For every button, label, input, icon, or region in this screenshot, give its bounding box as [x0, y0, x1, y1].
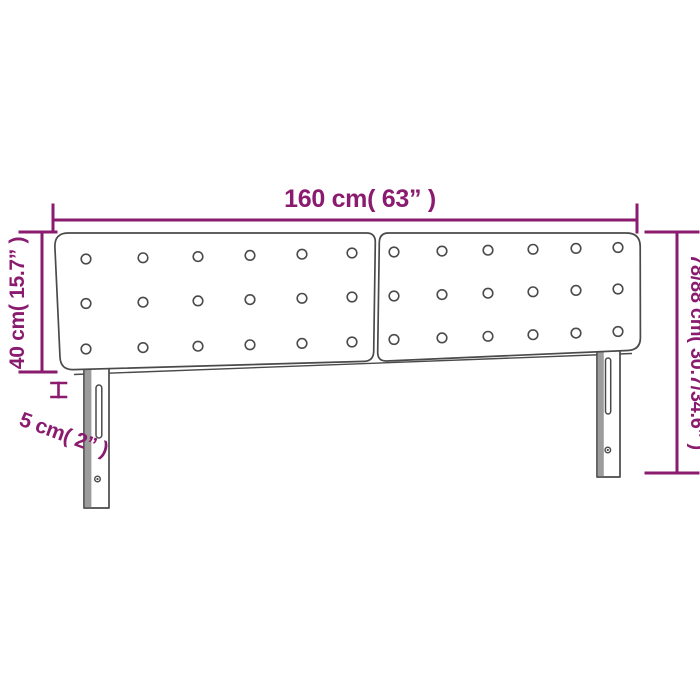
right-leg-slot [606, 358, 611, 414]
tufting-button [193, 341, 203, 351]
right-leg [597, 346, 620, 477]
diagram-canvas: 160 cm( 63” ) 40 cm( 15.7” ) 5 cm( 2” ) [0, 0, 700, 700]
headboard-right-panel [378, 233, 641, 361]
height-label: 40 cm( 15.7” ) [6, 237, 29, 369]
tufting-button [571, 244, 581, 254]
headboard-drawing [55, 233, 641, 508]
tufting-button [297, 339, 307, 349]
tufting-button [245, 340, 255, 350]
tufting-button [81, 254, 91, 264]
total-height-label: 78/88 cm( 30.7/34.6” ) [686, 254, 700, 450]
tufting-button [138, 343, 148, 353]
headboard-dimension-diagram: 160 cm( 63” ) 40 cm( 15.7” ) 5 cm( 2” ) [0, 0, 700, 700]
tufting-button [571, 328, 581, 338]
right-leg-screw-dot [607, 449, 609, 451]
tufting-button [138, 297, 148, 307]
tufting-button [437, 246, 447, 256]
tufting-button [245, 251, 255, 261]
tufting-button [347, 337, 357, 347]
tufting-button [389, 291, 399, 301]
tufting-button [389, 335, 399, 345]
tufting-button [483, 245, 493, 255]
tufting-button [483, 332, 493, 342]
height-dimension: 40 cm( 15.7” ) [6, 232, 56, 372]
headboard-left-panel [55, 233, 375, 370]
width-label: 160 cm( 63” ) [284, 185, 436, 213]
tufting-button [138, 253, 148, 263]
tufting-button [613, 243, 623, 253]
tufting-button [297, 294, 307, 304]
left-leg-slot [96, 385, 102, 438]
tufting-button [81, 344, 91, 354]
tufting-button [528, 330, 538, 340]
tufting-button [193, 252, 203, 262]
tufting-button [571, 286, 581, 296]
total-height-dimension: 78/88 cm( 30.7/34.6” ) [646, 232, 700, 473]
tufting-button [81, 299, 91, 309]
tufting-button [437, 290, 447, 300]
tufting-button [528, 245, 538, 255]
tufting-button [347, 292, 357, 302]
tufting-button [613, 327, 623, 337]
tufting-button [389, 247, 399, 257]
tufting-button [347, 248, 357, 258]
tufting-button [483, 288, 493, 298]
right-leg-shading [598, 347, 604, 476]
tufting-button [528, 287, 538, 297]
left-leg-screw-dot [96, 478, 98, 480]
tufting-button [193, 296, 203, 306]
tufting-button [245, 295, 255, 305]
width-dimension: 160 cm( 63” ) [53, 185, 637, 232]
tufting-button [613, 284, 623, 294]
tufting-button [437, 333, 447, 343]
tufting-button [297, 249, 307, 259]
